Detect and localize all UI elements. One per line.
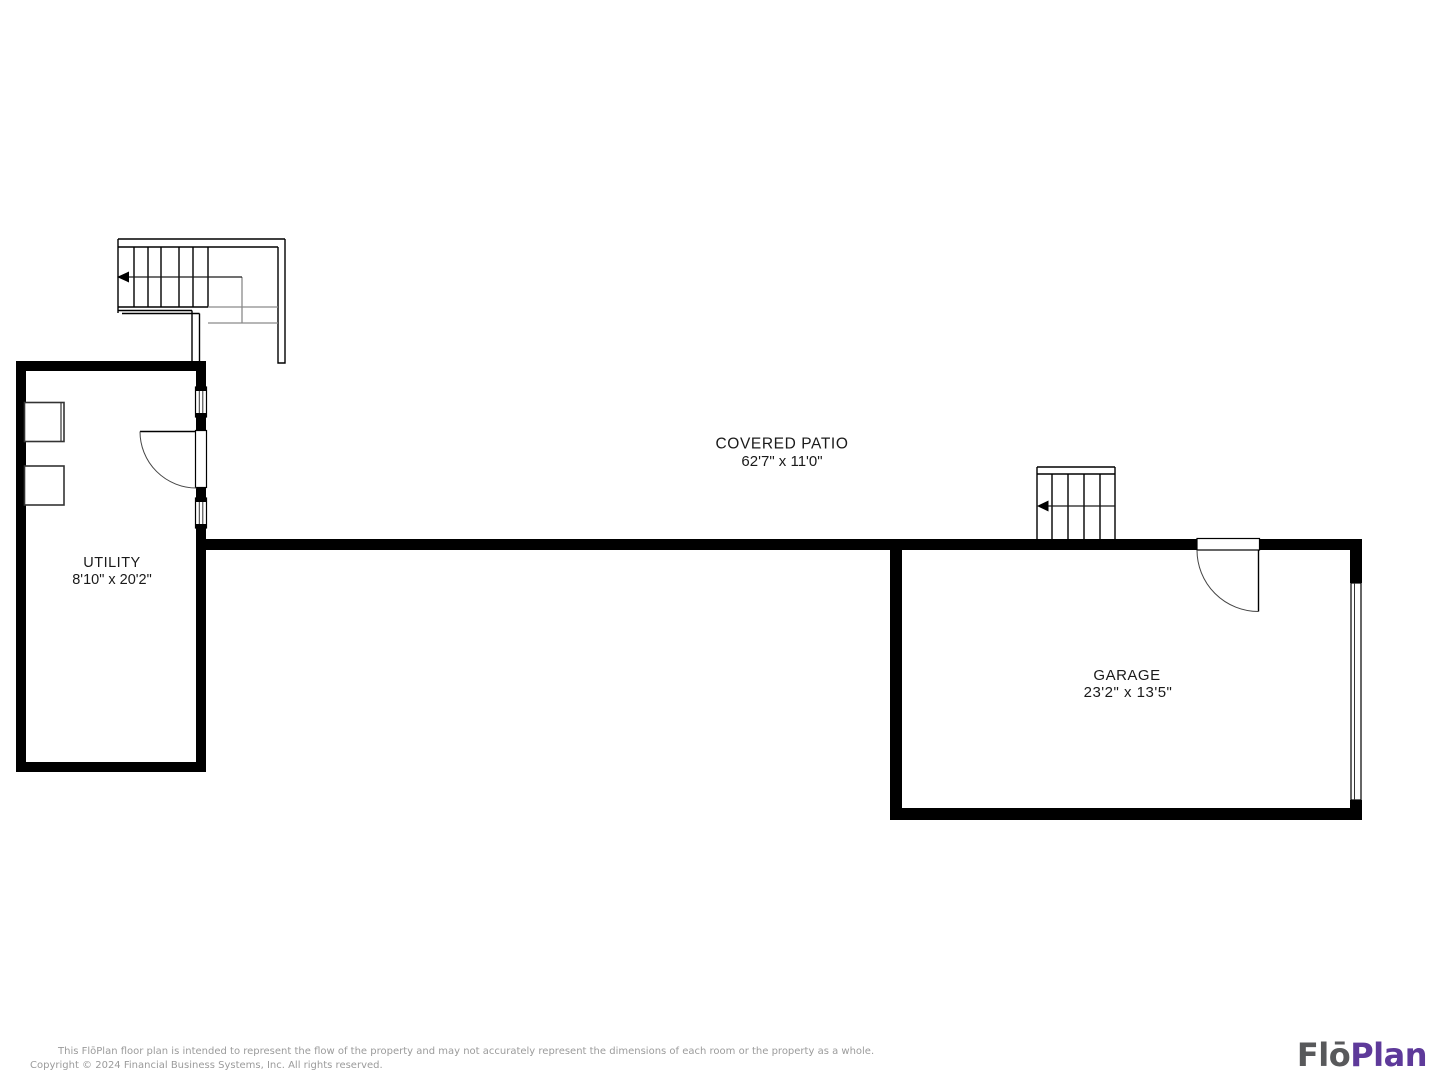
arrow-head-left-icon [117, 272, 129, 283]
window-cap-bottom [196, 413, 207, 417]
door-swing-arc [140, 432, 197, 489]
garage-wall-right-lower [1350, 800, 1362, 820]
landing-lines [208, 277, 278, 323]
utility-wall-right-seg4 [196, 528, 206, 772]
utility-wall-right-seg2 [196, 417, 206, 430]
appliance-square-lower [25, 466, 65, 505]
door-opening [196, 431, 207, 488]
window-cap-bottom [196, 524, 207, 528]
footer-disclaimer: This FlōPlan floor plan is intended to r… [58, 1045, 874, 1058]
garage-wall-top-right [1260, 539, 1362, 550]
staircase-garage [1037, 467, 1115, 539]
garage-wall-left [890, 539, 902, 820]
stair-outline [1037, 467, 1115, 539]
appliance-square-upper [25, 403, 65, 442]
utility-wall-bottom [16, 762, 206, 772]
garage-door-panel [1351, 583, 1361, 800]
floplan-logo-flo: Flō [1297, 1036, 1350, 1074]
staircase-upper-left-landing-lines [208, 277, 278, 323]
garage-label: GARAGE [1093, 667, 1160, 684]
utility-window-upper [196, 387, 207, 417]
utility-window-lower [196, 498, 207, 528]
window-frame [196, 498, 207, 528]
utility-wall-right-seg3 [196, 488, 206, 498]
utility-wall-top [16, 361, 206, 371]
window-cap-top [196, 498, 207, 502]
utility-door [140, 431, 207, 489]
utility-dimensions: 8'10" x 20'2" [72, 572, 152, 588]
garage-wall-bottom [890, 808, 1362, 820]
utility-wall-right-seg1 [196, 361, 206, 387]
garage-dimensions: 23'2" x 13'5" [1084, 684, 1173, 701]
window-cap-top [196, 387, 207, 391]
utility-label: UTILITY [83, 555, 140, 571]
covered-patio-wall [196, 539, 1197, 550]
floplan-logo-plan: Plan [1350, 1036, 1427, 1074]
footer-copyright: Copyright © 2024 Financial Business Syst… [30, 1059, 383, 1072]
floplan-logo: FlōPlan [1297, 1036, 1427, 1074]
door-opening [1197, 539, 1260, 551]
staircase-upper-left [118, 239, 285, 363]
washer-dryer-squares [25, 403, 65, 506]
garage-vehicle-door [1351, 583, 1361, 800]
stair-outline [118, 239, 285, 363]
arrow-head-left-icon [1037, 501, 1049, 512]
door-swing-arc [1197, 550, 1259, 612]
garage-wall-right-upper [1350, 539, 1362, 583]
patio-and-garage-walls [196, 539, 1362, 820]
window-frame [196, 387, 207, 417]
covered-patio-label: COVERED PATIO [716, 436, 849, 453]
floor-plan-svg: COVERED PATIO 62'7" x 11'0" UTILITY 8'10… [0, 0, 1440, 1080]
stair-direction-arrow-garage [1037, 501, 1115, 512]
garage-entry-door [1197, 539, 1260, 612]
covered-patio-dimensions: 62'7" x 11'0" [741, 453, 822, 470]
room-labels: COVERED PATIO 62'7" x 11'0" UTILITY 8'10… [72, 436, 1172, 702]
stair-bottom-edge [118, 307, 208, 361]
